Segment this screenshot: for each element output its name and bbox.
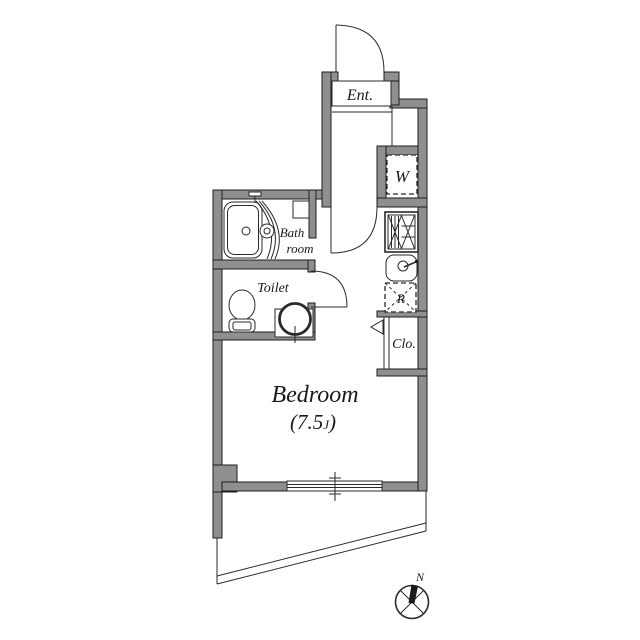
closet-area: Clo.	[371, 317, 416, 369]
closet-label: Clo.	[392, 337, 416, 352]
toilet-room: Toilet	[229, 271, 347, 343]
shower-drain-outer	[260, 224, 274, 238]
bath-label-line1: Bath	[280, 225, 305, 240]
floor-plan-drawing: Ent. W	[0, 0, 640, 640]
washer-space: W	[387, 155, 417, 194]
bath-label-line2: room	[287, 241, 314, 256]
bedroom-window	[287, 472, 382, 501]
bath-room: Bath room	[224, 192, 313, 259]
bedroom-area: Bedroom (7.5J)	[271, 382, 382, 501]
entrance-area: Ent.	[332, 25, 392, 146]
toilet-door-swing-arc	[311, 271, 347, 307]
bathtub-outer	[224, 202, 262, 258]
toilet-label: Toilet	[257, 281, 289, 296]
bath-faucet-body	[249, 192, 261, 196]
wall-segment	[384, 72, 399, 81]
kitchen-area: R	[385, 212, 418, 312]
kitchen-sink-icon	[386, 255, 418, 281]
compass-icon: N	[396, 570, 429, 619]
balcony-outline	[217, 531, 426, 584]
compass-needle	[409, 585, 419, 604]
wall-segment	[213, 260, 315, 269]
balcony-area	[217, 491, 426, 584]
wall-segment	[377, 198, 427, 207]
wall-segment	[222, 482, 287, 491]
toilet-door	[311, 271, 347, 307]
corridor-door-swing-arc	[331, 207, 377, 253]
bedroom-label: Bedroom	[271, 382, 358, 408]
wall-segment	[322, 72, 331, 207]
wall-segment	[309, 190, 316, 238]
bathtub-icon	[224, 202, 262, 258]
sink-faucet-dot	[415, 260, 418, 263]
bedroom-size-open: (7.5	[290, 410, 323, 434]
bath-counter	[293, 201, 309, 218]
closet-door-arrow-icon	[371, 320, 383, 334]
toilet-fixture-icon	[229, 290, 255, 332]
bedroom-size-label: (7.5J)	[290, 410, 336, 434]
sink-basin	[386, 255, 417, 281]
bedroom-size-close: )	[328, 410, 336, 434]
wall-segment	[213, 190, 322, 199]
stove-inner	[388, 215, 415, 249]
wall-segment	[308, 260, 315, 272]
washer-label: W	[395, 167, 411, 186]
wall-segment	[377, 369, 427, 376]
floor-plan-page: Ent. W	[0, 0, 640, 640]
entrance-door-swing-arc	[336, 25, 384, 72]
gas-stove-icon	[385, 212, 418, 252]
entrance-label: Ent.	[346, 87, 373, 104]
balcony-railing-line	[217, 523, 426, 576]
wash-basin-icon	[275, 304, 313, 344]
compass-north-label: N	[415, 570, 425, 584]
wall-segment	[418, 99, 427, 491]
refrigerator-label: R	[396, 291, 405, 306]
corridor-door	[331, 207, 377, 253]
toilet-bowl	[229, 290, 255, 320]
refrigerator-space: R	[385, 283, 416, 312]
